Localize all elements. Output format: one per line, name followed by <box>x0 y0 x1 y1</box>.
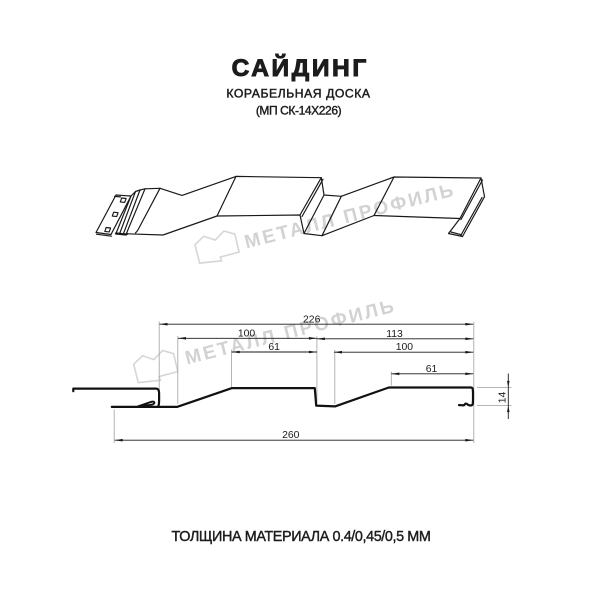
svg-text:ТОЛЩИНА МАТЕРИАЛА 0.4/0,45/0,5: ТОЛЩИНА МАТЕРИАЛА 0.4/0,45/0,5 ММ <box>172 529 431 545</box>
svg-text:61: 61 <box>426 364 438 375</box>
svg-text:260: 260 <box>282 430 300 441</box>
svg-text:14: 14 <box>498 392 509 404</box>
svg-text:МЕТАЛЛ ПРОФИЛЬ: МЕТАЛЛ ПРОФИЛЬ <box>183 296 398 370</box>
svg-text:МЕТАЛЛ ПРОФИЛЬ: МЕТАЛЛ ПРОФИЛЬ <box>242 180 457 254</box>
svg-text:113: 113 <box>386 329 403 340</box>
svg-text:САЙДИНГ: САЙДИНГ <box>232 54 369 82</box>
svg-text:61: 61 <box>268 342 280 353</box>
svg-text:226: 226 <box>303 314 321 325</box>
svg-text:(МП СК-14Х226): (МП СК-14Х226) <box>256 103 342 117</box>
svg-text:100: 100 <box>238 328 256 339</box>
svg-text:100: 100 <box>396 342 414 353</box>
svg-text:КОРАБЕЛЬНАЯ ДОСКА: КОРАБЕЛЬНАЯ ДОСКА <box>226 87 371 101</box>
